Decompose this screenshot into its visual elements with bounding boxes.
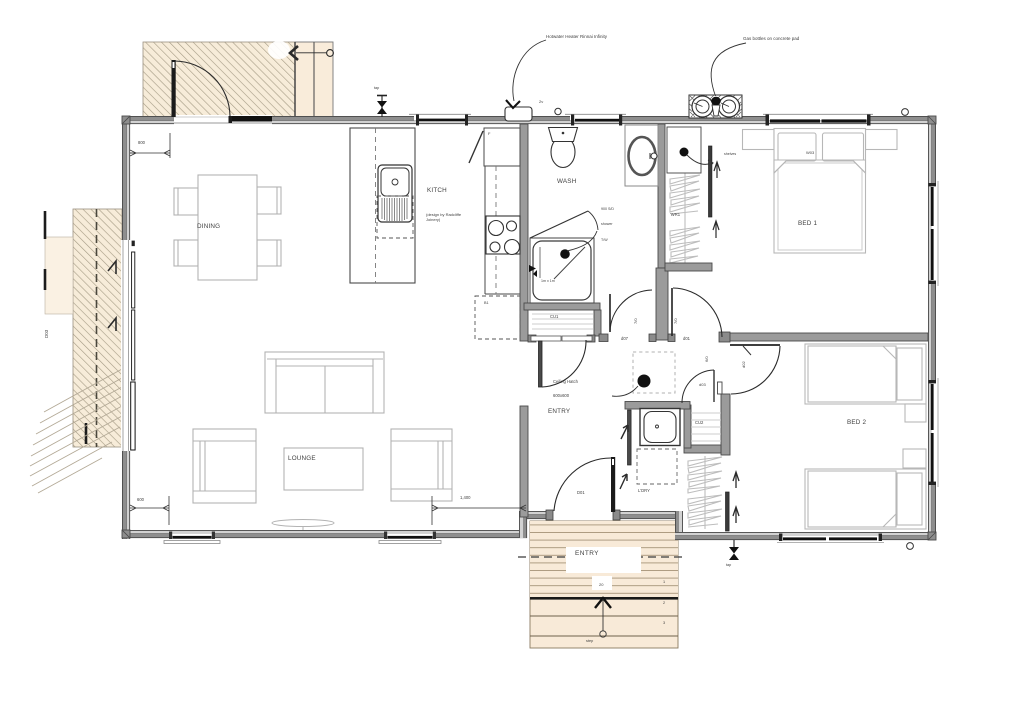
svg-text:shelves: shelves bbox=[724, 152, 736, 156]
svg-text:LOUNGE: LOUNGE bbox=[288, 455, 316, 462]
svg-text:KITCH: KITCH bbox=[427, 187, 447, 194]
svg-text:B1: B1 bbox=[484, 301, 489, 305]
svg-text:2: 2 bbox=[663, 601, 665, 605]
svg-text:shower: shower bbox=[601, 222, 613, 226]
svg-text:D03: D03 bbox=[44, 329, 49, 338]
svg-text:600x600: 600x600 bbox=[553, 393, 570, 398]
svg-text:tap: tap bbox=[374, 86, 379, 90]
svg-text:20: 20 bbox=[599, 582, 604, 587]
svg-text:Gas bottles on concrete pad: Gas bottles on concrete pad bbox=[743, 36, 800, 41]
svg-text:step: step bbox=[586, 639, 593, 643]
svg-text:Hotwater Heater Rinnai Infinit: Hotwater Heater Rinnai Infinity bbox=[546, 34, 608, 39]
svg-text:d07: d07 bbox=[621, 336, 629, 341]
svg-text:600: 600 bbox=[137, 497, 145, 502]
svg-text:800: 800 bbox=[138, 140, 146, 145]
svg-text:6/0: 6/0 bbox=[704, 356, 709, 362]
svg-text:CU1: CU1 bbox=[550, 314, 559, 319]
svg-text:L'DRY: L'DRY bbox=[638, 488, 650, 493]
svg-text:1m x 1m: 1m x 1m bbox=[541, 279, 555, 283]
svg-text:d03: d03 bbox=[699, 382, 706, 387]
svg-text:tap: tap bbox=[726, 563, 731, 567]
svg-text:7/0: 7/0 bbox=[633, 318, 638, 324]
svg-text:7/0: 7/0 bbox=[673, 318, 678, 324]
svg-text:ENTRY: ENTRY bbox=[548, 408, 571, 415]
svg-text:d02: d02 bbox=[741, 361, 746, 368]
svg-text:3: 3 bbox=[663, 621, 665, 625]
svg-text:WASH: WASH bbox=[557, 178, 577, 185]
svg-text:900 S/D: 900 S/D bbox=[601, 207, 614, 211]
svg-text:D01: D01 bbox=[577, 490, 585, 495]
svg-text:BED 1: BED 1 bbox=[798, 220, 817, 227]
svg-text:1: 1 bbox=[663, 580, 665, 584]
svg-text:2v: 2v bbox=[539, 99, 543, 104]
svg-text:1,400: 1,400 bbox=[460, 495, 471, 500]
svg-text:ENTRY: ENTRY bbox=[575, 550, 599, 557]
svg-text:T/W: T/W bbox=[601, 238, 608, 242]
svg-text:Joinery): Joinery) bbox=[426, 217, 441, 222]
svg-text:W03: W03 bbox=[806, 150, 815, 155]
svg-text:'WR1: 'WR1 bbox=[670, 212, 681, 217]
svg-text:BED 2: BED 2 bbox=[847, 419, 866, 426]
svg-text:d01: d01 bbox=[683, 336, 691, 341]
svg-text:DINING: DINING bbox=[197, 223, 220, 230]
svg-text:CU2: CU2 bbox=[695, 420, 704, 425]
